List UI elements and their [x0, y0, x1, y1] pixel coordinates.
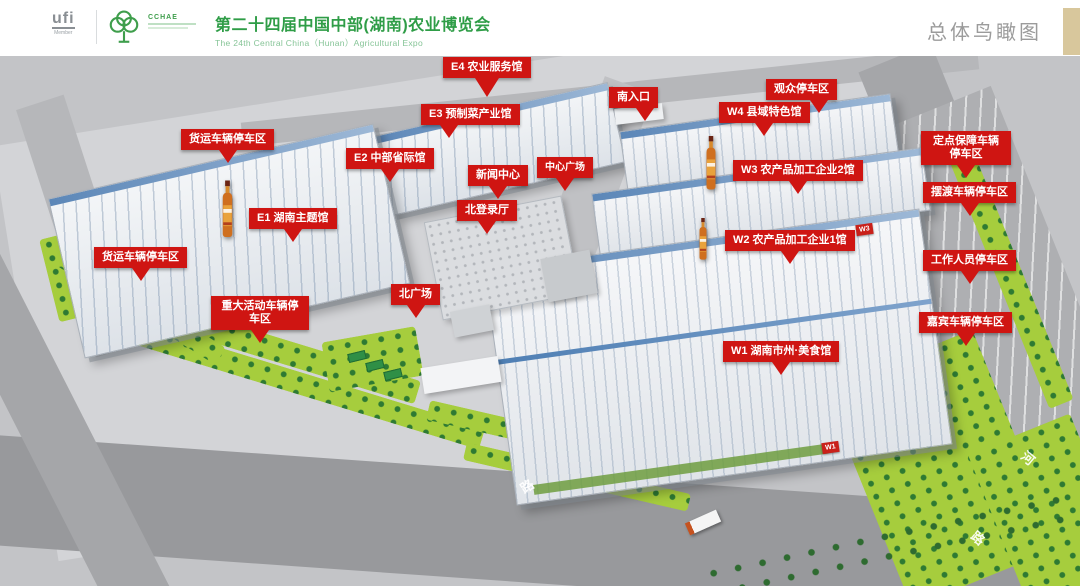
- ufi-member-text: Member: [52, 30, 75, 36]
- callout-secured-parking: 定点保障车辆停车区: [921, 131, 1011, 165]
- callout-staff-parking: 工作人员停车区: [923, 250, 1016, 271]
- sauce-bottle-icon: [696, 218, 710, 265]
- ufi-logo: ufi Member: [52, 10, 75, 36]
- callout-freight-parking-south: 货运车辆停车区: [94, 247, 187, 268]
- callout-e3-hall: E3 预制菜产业馆: [421, 104, 520, 125]
- org-acronym: CCHAE: [148, 14, 196, 21]
- callout-south-entrance: 南入口: [609, 87, 658, 108]
- page-header: ufi Member CCHAE 第二十四届中国中部(湖南)农业博览会 The …: [0, 0, 1080, 56]
- callout-visitor-parking: 观众停车区: [766, 79, 837, 100]
- callout-north-login-hall: 北登录厅: [457, 200, 517, 221]
- expo-title-en: The 24th Central China（Hunan）Agricultura…: [215, 37, 491, 49]
- news-center-building: [540, 250, 597, 303]
- callout-freight-parking-north: 货运车辆停车区: [181, 129, 274, 150]
- hall-sign-w3: W3: [855, 223, 873, 236]
- sauce-bottle-icon: [702, 136, 720, 195]
- callout-e4-hall: E4 农业服务馆: [443, 57, 531, 78]
- callout-w4-hall: W4 县域特色馆: [719, 102, 810, 123]
- callout-e1-hall: E1 湖南主题馆: [249, 208, 337, 229]
- callout-w1-hall: W1 湖南市州·美食馆: [723, 341, 839, 362]
- callout-w3-hall: W3 农产品加工企业2馆: [733, 160, 863, 181]
- header-divider: [96, 10, 97, 44]
- expo-logo-icon: [106, 9, 142, 47]
- roof-blue-band: [497, 298, 931, 364]
- expo-title-cn: 第二十四届中国中部(湖南)农业博览会: [215, 11, 491, 35]
- callout-major-event-parking: 重大活动车辆停车区: [211, 296, 309, 330]
- callout-shuttle-parking: 摆渡车辆停车区: [923, 182, 1016, 203]
- hall-sign-w1: W1: [821, 441, 839, 454]
- callout-north-plaza: 北广场: [391, 284, 440, 305]
- sauce-bottle-icon: [218, 180, 237, 243]
- site-aerial-map: W3 W1 路 河 路: [0, 56, 1080, 586]
- org-text-block: CCHAE: [148, 14, 196, 29]
- callout-guest-parking: 嘉宾车辆停车区: [919, 312, 1012, 333]
- view-title: 总体鸟瞰图: [927, 16, 1042, 45]
- expo-title-block: 第二十四届中国中部(湖南)农业博览会 The 24th Central Chin…: [215, 11, 491, 49]
- ufi-logo-text: ufi: [52, 10, 75, 29]
- callout-news-center: 新闻中心: [468, 165, 528, 186]
- org-tagline-lines: [148, 23, 196, 29]
- callout-w2-hall: W2 农产品加工企业1馆: [725, 230, 855, 251]
- tan-accent-bar: [1063, 8, 1080, 55]
- callout-central-plaza: 中心广场: [537, 157, 593, 178]
- callout-e2-hall: E2 中部省际馆: [346, 148, 434, 169]
